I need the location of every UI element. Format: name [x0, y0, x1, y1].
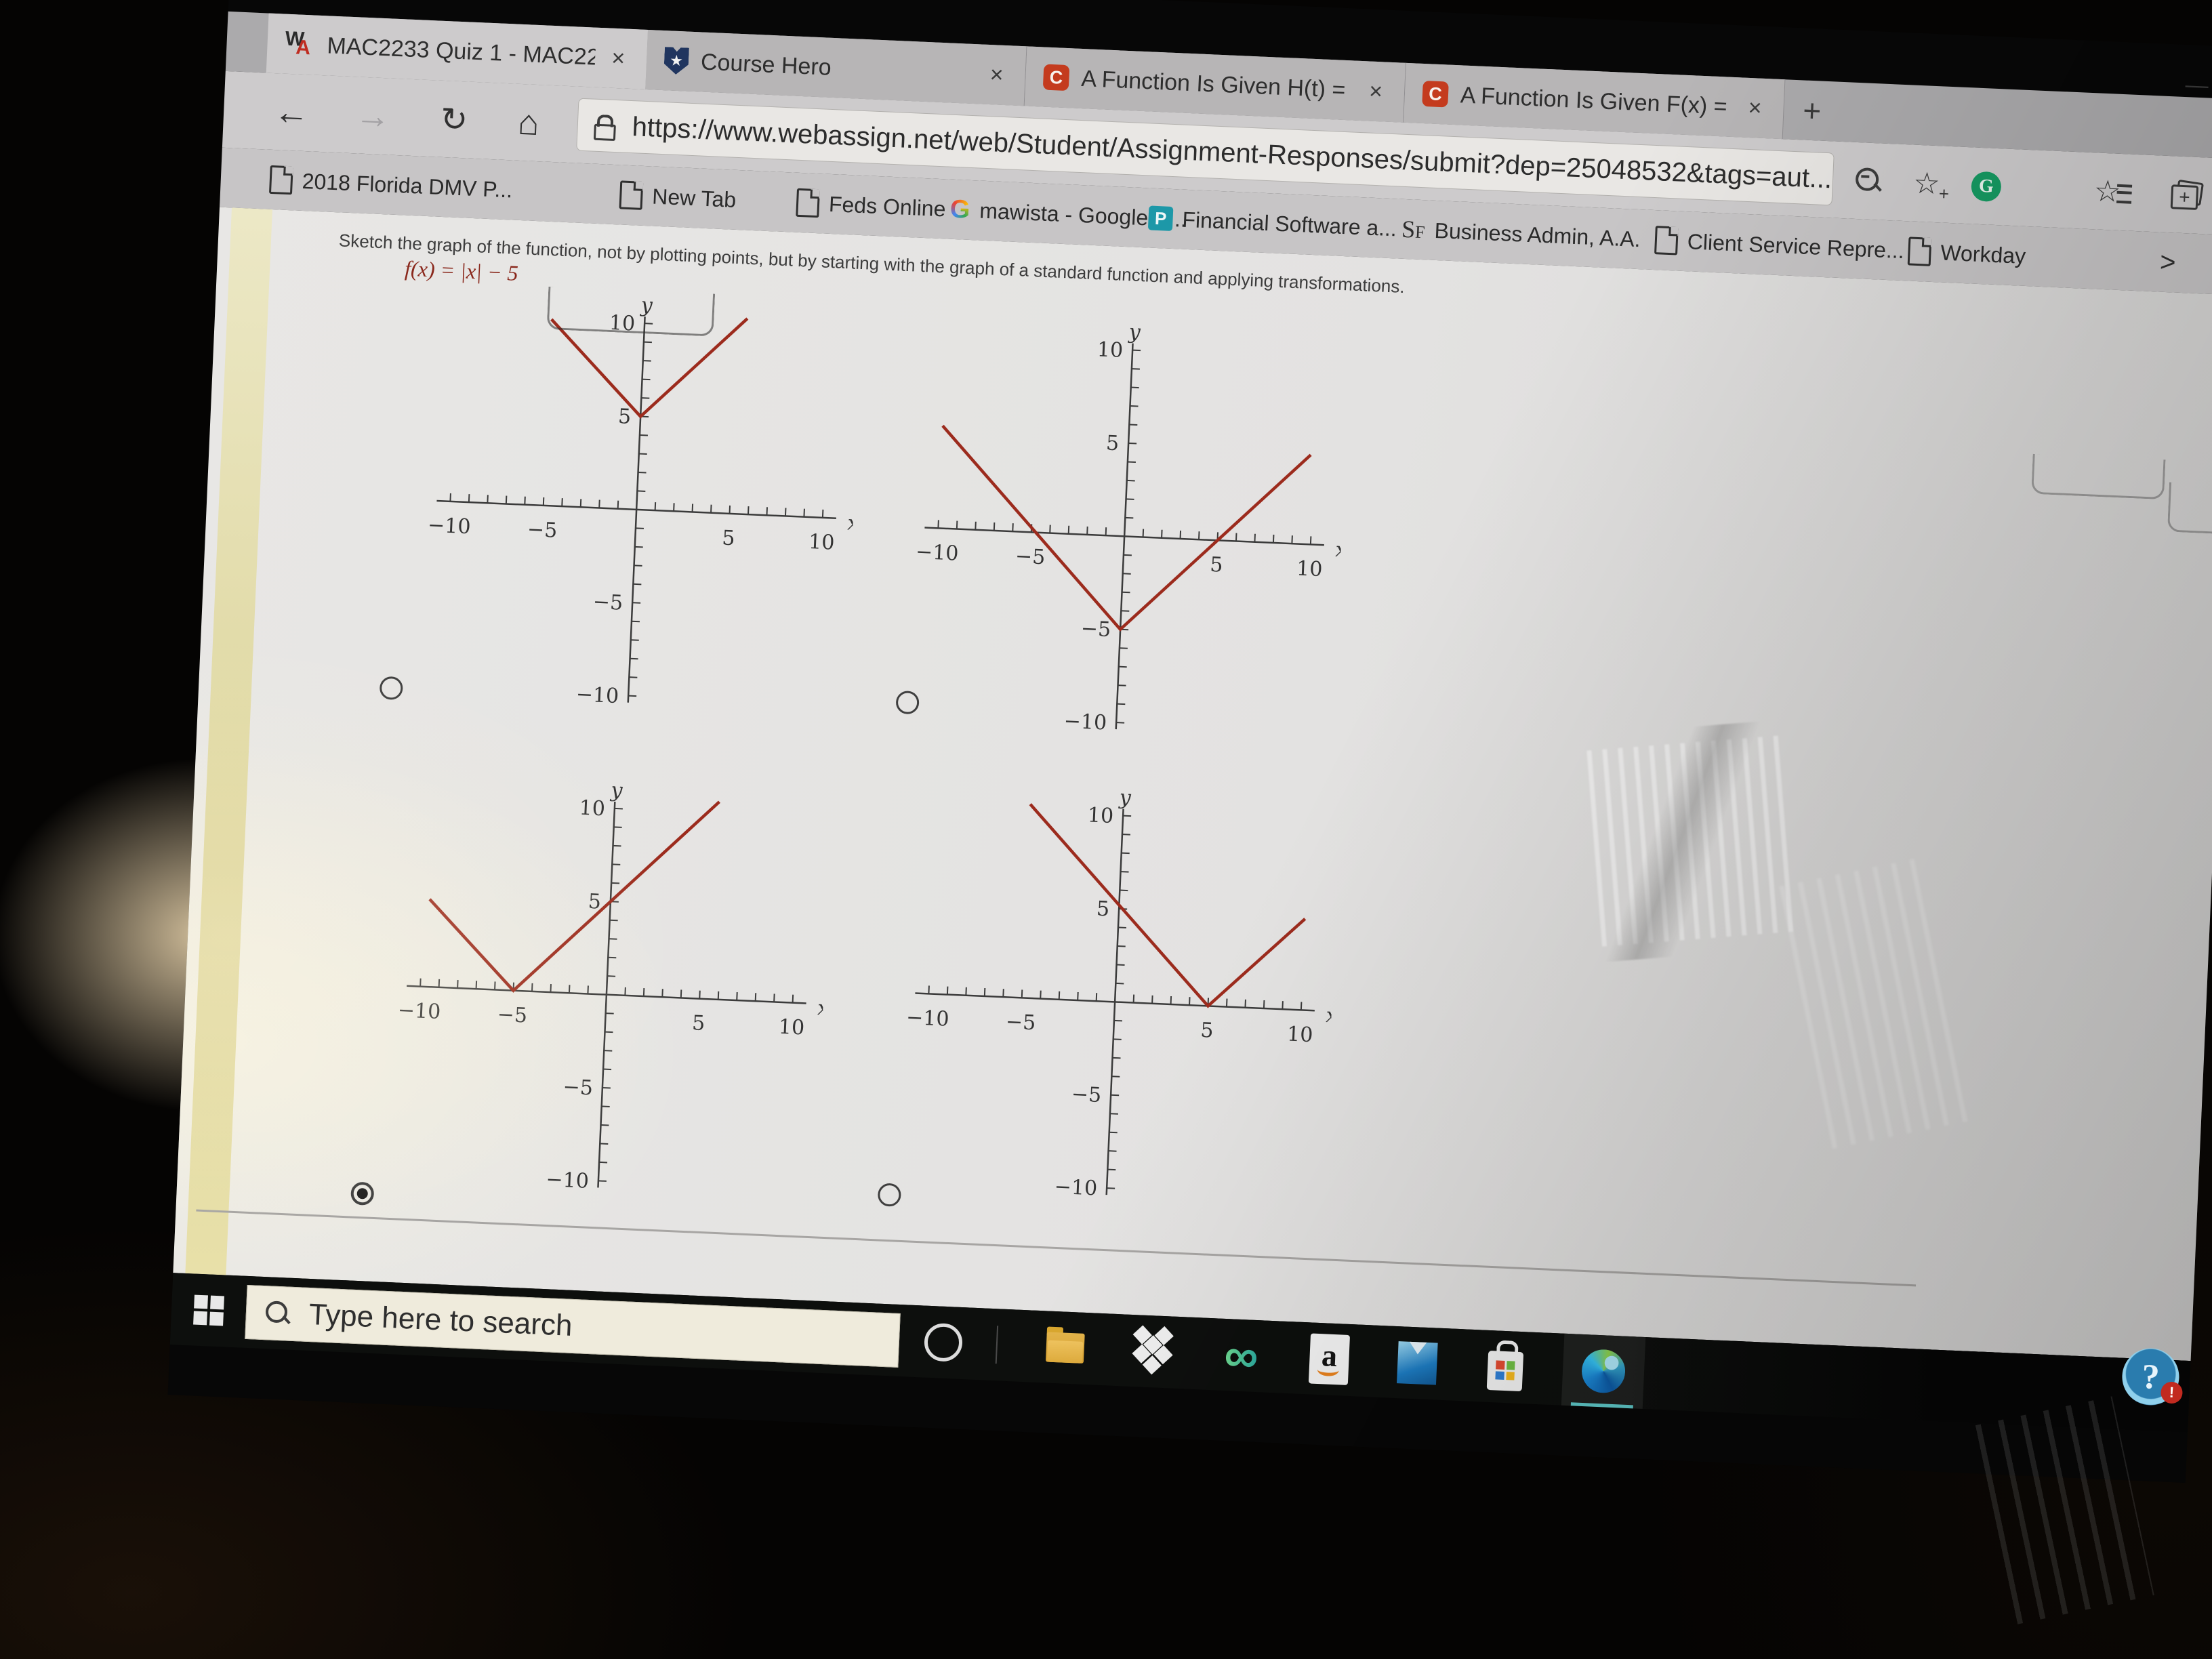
bookmark-2018-florida-dmv[interactable]: 2018 Florida DMV P...: [268, 150, 514, 220]
collections-button[interactable]: [2160, 156, 2211, 234]
new-tab-button[interactable]: +: [1783, 91, 1841, 130]
chegg-icon: C: [1422, 81, 1449, 108]
taskbar-divider: [992, 1309, 1002, 1380]
svg-text:5: 5: [1200, 1019, 1214, 1043]
svg-text:−10: −10: [575, 682, 619, 708]
svg-text:y: y: [1118, 785, 1132, 810]
popup-edge-artifact: [2167, 483, 2212, 537]
page-icon: [269, 165, 293, 194]
svg-text:−5: −5: [527, 518, 558, 543]
minimize-button[interactable]: —: [2185, 72, 2209, 99]
grammarly-icon: G: [1971, 171, 2002, 202]
page-icon: [1654, 226, 1679, 255]
popup-edge-artifact: [547, 287, 716, 337]
dropbox-icon: [1131, 1326, 1175, 1377]
mail-icon: [1397, 1341, 1438, 1385]
svg-text:5: 5: [1105, 432, 1120, 456]
file-explorer-button[interactable]: [1030, 1311, 1101, 1385]
svg-text:10: 10: [1296, 556, 1323, 581]
svg-text:−5: −5: [1080, 617, 1111, 642]
back-button[interactable]: ←: [260, 73, 324, 152]
bookmarks-overflow-chevron[interactable]: >: [2158, 232, 2177, 293]
star-add-icon: ☆+: [1912, 166, 1941, 202]
option-graph-d: −10−5510−10−5510xy: [888, 783, 1340, 1228]
zoom-out-icon: [1853, 165, 1885, 197]
svg-text:x: x: [1326, 1004, 1338, 1028]
option-graph-b: −10−5510−10−5510xy: [898, 317, 1350, 762]
svg-text:y: y: [609, 779, 624, 803]
chegg-icon: C: [1043, 64, 1070, 91]
page-icon: [619, 180, 643, 209]
page-icon: [1908, 237, 1932, 266]
webassign-page: Sketch the graph of the function, not by…: [173, 207, 2212, 1361]
window-blind-glare: [1580, 735, 1799, 947]
svg-text:10: 10: [1087, 803, 1114, 828]
close-icon[interactable]: ×: [1364, 78, 1387, 105]
svg-text:10: 10: [778, 1015, 805, 1040]
svg-text:−10: −10: [1063, 710, 1107, 735]
edge-icon: [1581, 1349, 1626, 1394]
favorites-hub-button[interactable]: ☆: [2078, 152, 2136, 230]
laptop-screen: WA MAC2233 Quiz 1 - MAC2233, Fal × ★ Cou…: [168, 0, 2212, 1483]
close-icon[interactable]: ×: [607, 45, 630, 72]
collections-add-icon: [2169, 180, 2202, 210]
svg-text:−10: −10: [427, 514, 471, 539]
svg-text:−5: −5: [562, 1076, 594, 1101]
svg-text:−5: −5: [497, 1003, 528, 1028]
mail-button[interactable]: [1382, 1326, 1453, 1400]
svg-text:−10: −10: [1054, 1175, 1098, 1201]
function-label: f(x) = |x| − 5: [405, 256, 519, 286]
tab-title: A Function Is Given F(x) = X3 −: [1460, 82, 1732, 120]
sf-text-icon: SF: [1401, 215, 1425, 244]
webassign-icon: WA: [285, 30, 316, 59]
page-icon: [796, 188, 820, 218]
svg-text:10: 10: [1286, 1023, 1313, 1048]
svg-text:−5: −5: [1015, 544, 1046, 569]
close-icon[interactable]: ×: [1744, 94, 1767, 121]
amazon-icon: a: [1309, 1333, 1350, 1385]
grammarly-button[interactable]: G: [1961, 147, 2011, 226]
amazon-button[interactable]: a: [1294, 1322, 1365, 1397]
svg-text:−5: −5: [1071, 1082, 1102, 1107]
bookmark-workday[interactable]: Workday: [1907, 221, 2027, 285]
svg-text:5: 5: [1210, 553, 1224, 577]
windows-start-icon: [193, 1295, 224, 1326]
lock-icon: [594, 112, 615, 140]
cortana-icon: [924, 1323, 963, 1362]
svg-text:10: 10: [808, 530, 835, 555]
option-graph-a: −10−5510−10−5510xy: [411, 290, 863, 735]
coursehero-shield-icon: ★: [663, 47, 689, 75]
option-radio-c[interactable]: [350, 1182, 374, 1206]
infinity-icon: ∞: [1223, 1328, 1259, 1383]
svg-text:x: x: [1335, 538, 1348, 562]
svg-text:x: x: [817, 996, 830, 1021]
zoom-out-button[interactable]: [1844, 142, 1895, 220]
svg-text:5: 5: [617, 405, 632, 429]
popup-edge-artifact: [2031, 454, 2165, 499]
bookmark-feds-online[interactable]: Feds Online: [795, 173, 947, 239]
svg-text:5: 5: [1096, 897, 1110, 922]
tab-title: A Function Is Given H(t) = 2t2 −: [1081, 65, 1353, 103]
p-badge-icon: P: [1148, 205, 1174, 231]
microsoft-store-button[interactable]: [1470, 1330, 1541, 1404]
svg-text:10: 10: [579, 796, 606, 821]
home-button[interactable]: ⌂: [496, 83, 560, 163]
option-graph-c: −10−5510−10−5510xy: [380, 775, 832, 1221]
google-g-icon: G: [949, 194, 970, 224]
bookmark-new-tab[interactable]: New Tab: [618, 165, 737, 229]
svg-text:x: x: [847, 512, 860, 536]
svg-text:5: 5: [691, 1011, 705, 1036]
add-favorite-button[interactable]: ☆+: [1902, 144, 1952, 223]
close-icon[interactable]: ×: [985, 61, 1008, 88]
search-placeholder: Type here to search: [308, 1298, 573, 1343]
svg-text:−10: −10: [546, 1168, 590, 1193]
search-icon: [264, 1299, 292, 1328]
svg-text:5: 5: [722, 526, 736, 550]
page-bottom-divider: [196, 1210, 1916, 1287]
page-left-highlight-band: [185, 207, 272, 1275]
window-blind-glare: [1771, 859, 1967, 1150]
tab-title: Course Hero: [700, 49, 974, 87]
svg-text:−10: −10: [397, 998, 441, 1024]
svg-text:−5: −5: [1005, 1010, 1036, 1035]
cortana-button[interactable]: [922, 1306, 966, 1380]
refresh-button[interactable]: ↻: [422, 80, 487, 159]
forward-button[interactable]: →: [341, 76, 405, 155]
svg-text:−10: −10: [905, 1006, 949, 1031]
dropbox-button[interactable]: [1118, 1314, 1189, 1389]
photo-background: WA MAC2233 Quiz 1 - MAC2233, Fal × ★ Cou…: [0, 0, 2212, 1659]
star-list-icon: ☆: [2093, 173, 2122, 209]
bookmark-client-service[interactable]: Client Service Repre...: [1654, 210, 1906, 281]
microsoft-store-icon: [1487, 1351, 1523, 1391]
svg-text:y: y: [1127, 320, 1142, 344]
start-button[interactable]: [177, 1273, 241, 1348]
bookmark-business-admin[interactable]: SFBusiness Admin, A.A.: [1400, 199, 1641, 269]
option-radio-a[interactable]: [380, 676, 403, 700]
file-explorer-icon: [1046, 1332, 1085, 1363]
svg-text:−5: −5: [592, 590, 623, 615]
bookmark-financial-software[interactable]: PFinancial Software a...: [1147, 188, 1398, 258]
tab-title: MAC2233 Quiz 1 - MAC2233, Fal: [327, 33, 596, 70]
infinity-app-button[interactable]: ∞: [1206, 1318, 1277, 1393]
svg-text:10: 10: [1097, 337, 1124, 363]
svg-text:−10: −10: [915, 540, 959, 566]
